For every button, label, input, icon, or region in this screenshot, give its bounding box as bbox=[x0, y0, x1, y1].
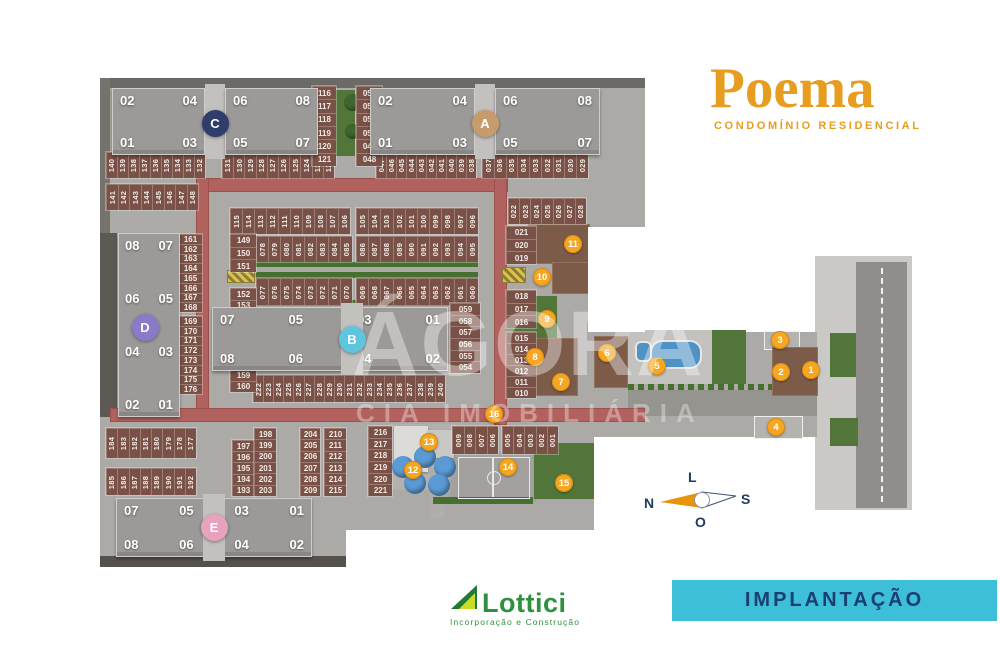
building-units-top-row: 0608 bbox=[495, 93, 600, 108]
parking-spot-030: 030 bbox=[564, 152, 576, 178]
parking-spot-078: 078 bbox=[256, 236, 268, 262]
parking-spot-215: 215 bbox=[324, 485, 346, 496]
unit-label: 08 bbox=[125, 238, 139, 253]
parking-spot-161: 161 bbox=[178, 234, 202, 244]
parking-spot-025: 025 bbox=[541, 198, 552, 224]
parking-spot-178: 178 bbox=[174, 428, 185, 458]
amenity-marker-14: 14 bbox=[499, 458, 517, 476]
parking-spot-192: 192 bbox=[185, 468, 196, 495]
parking-spot-171: 171 bbox=[178, 336, 202, 346]
parking-spot-136: 136 bbox=[150, 152, 161, 178]
parking-spot-004: 004 bbox=[513, 426, 524, 454]
unit-label: 07 bbox=[159, 238, 173, 253]
building-units-bottom-row: 0507 bbox=[495, 135, 600, 150]
unit-label: 07 bbox=[220, 312, 234, 327]
unit-label: 01 bbox=[378, 135, 392, 150]
parking-spot-163: 163 bbox=[178, 254, 202, 264]
parking-spot-185: 185 bbox=[106, 468, 117, 495]
parking-spot-114: 114 bbox=[242, 208, 254, 234]
parking-spot-041: 041 bbox=[436, 152, 446, 178]
internal-road-top bbox=[196, 178, 508, 192]
unit-label: 06 bbox=[289, 351, 303, 366]
parking-spot-099: 099 bbox=[429, 208, 441, 234]
parking-spot-224: 224 bbox=[273, 375, 283, 402]
parking-spot-042: 042 bbox=[426, 152, 436, 178]
parking-spot-145: 145 bbox=[152, 184, 164, 210]
parking-group-185-192: 185186187188189190191192 bbox=[106, 468, 196, 495]
parking-spot-033: 033 bbox=[529, 152, 541, 178]
parking-spot-079: 079 bbox=[268, 236, 280, 262]
parking-spot-191: 191 bbox=[174, 468, 185, 495]
parking-spot-103: 103 bbox=[380, 208, 392, 234]
parking-spot-197: 197 bbox=[232, 440, 254, 451]
parking-spot-175: 175 bbox=[178, 375, 202, 385]
unit-label: 06 bbox=[503, 93, 517, 108]
parking-spot-164: 164 bbox=[178, 263, 202, 273]
visitor-hatch-1 bbox=[228, 271, 254, 282]
parking-spot-090: 090 bbox=[405, 236, 417, 262]
parking-spot-100: 100 bbox=[417, 208, 429, 234]
street-green-1 bbox=[830, 333, 856, 377]
parking-group-047-038: 047046045044043042041040039038 bbox=[376, 152, 476, 178]
parking-spot-023: 023 bbox=[519, 198, 530, 224]
parking-spot-091: 091 bbox=[417, 236, 429, 262]
parking-spot-125: 125 bbox=[289, 152, 300, 178]
parking-spot-217: 217 bbox=[368, 438, 392, 450]
parking-spot-002: 002 bbox=[536, 426, 547, 454]
parking-spot-110: 110 bbox=[290, 208, 302, 234]
unit-label: 05 bbox=[159, 291, 173, 306]
parking-spot-133: 133 bbox=[183, 152, 194, 178]
parking-spot-144: 144 bbox=[141, 184, 153, 210]
plan-notch-bottom bbox=[346, 530, 645, 567]
parking-spot-188: 188 bbox=[140, 468, 151, 495]
building-D-unit-row: 0403 bbox=[118, 344, 180, 359]
hedge-1 bbox=[256, 262, 478, 267]
unit-label: 06 bbox=[179, 537, 193, 552]
parking-group-086-095: 086087088089090091092093094095 bbox=[356, 236, 478, 262]
parking-spot-039: 039 bbox=[456, 152, 466, 178]
amenity-marker-4: 4 bbox=[767, 418, 785, 436]
building-D-unit-row: 0807 bbox=[118, 238, 180, 253]
parking-spot-213: 213 bbox=[324, 462, 346, 473]
parking-spot-088: 088 bbox=[380, 236, 392, 262]
building-A-slab-1: 02040103 bbox=[370, 88, 475, 155]
compass-label-l: L bbox=[688, 469, 697, 485]
compass-rose: N L O S bbox=[638, 468, 753, 530]
parking-spot-207: 207 bbox=[300, 462, 320, 473]
parking-spot-160: 160 bbox=[230, 381, 256, 393]
parking-spot-173: 173 bbox=[178, 355, 202, 365]
unit-label: 05 bbox=[179, 503, 193, 518]
compass-label-s: S bbox=[741, 491, 750, 507]
parking-spot-028: 028 bbox=[575, 198, 586, 224]
unit-label: 08 bbox=[220, 351, 234, 366]
parking-spot-162: 162 bbox=[178, 244, 202, 254]
building-units-top-row: 0608 bbox=[225, 93, 318, 108]
parking-spot-009: 009 bbox=[452, 426, 464, 454]
parking-spot-101: 101 bbox=[405, 208, 417, 234]
parking-spot-149: 149 bbox=[230, 234, 256, 247]
building-D: 0807060504030201D bbox=[118, 233, 180, 417]
parking-spot-146: 146 bbox=[164, 184, 176, 210]
parking-spot-098: 098 bbox=[441, 208, 453, 234]
parking-spot-184: 184 bbox=[106, 428, 117, 458]
parking-spot-092: 092 bbox=[429, 236, 441, 262]
parking-spot-106: 106 bbox=[338, 208, 350, 234]
parking-spot-134: 134 bbox=[172, 152, 183, 178]
amenity-marker-13: 13 bbox=[420, 433, 438, 451]
watermark-agency-subtitle: CIA IMOBILIÁRIA bbox=[356, 398, 704, 429]
parking-spot-027: 027 bbox=[564, 198, 575, 224]
parking-spot-003: 003 bbox=[524, 426, 535, 454]
unit-label: 03 bbox=[183, 135, 197, 150]
parking-spot-071: 071 bbox=[328, 278, 340, 305]
parking-spot-032: 032 bbox=[541, 152, 553, 178]
parking-spot-094: 094 bbox=[454, 236, 466, 262]
parking-spot-229: 229 bbox=[324, 375, 334, 402]
site-edge-left-garden bbox=[100, 233, 117, 417]
building-units-top-row: 0204 bbox=[112, 93, 205, 108]
parking-spot-031: 031 bbox=[553, 152, 565, 178]
parking-spot-076: 076 bbox=[268, 278, 280, 305]
implantacao-banner-label: IMPLANTAÇÃO bbox=[745, 589, 924, 612]
parking-spot-035: 035 bbox=[506, 152, 518, 178]
parking-spot-205: 205 bbox=[300, 439, 320, 450]
parking-spot-206: 206 bbox=[300, 451, 320, 462]
parking-spot-135: 135 bbox=[161, 152, 172, 178]
parking-spot-201: 201 bbox=[254, 462, 276, 473]
parking-spot-040: 040 bbox=[446, 152, 456, 178]
parking-spot-086: 086 bbox=[356, 236, 368, 262]
parking-group-140-132: 140139138137136135134133132 bbox=[106, 152, 205, 178]
parking-group-077-070: 077076075074073072071070 bbox=[256, 278, 352, 305]
parking-spot-203: 203 bbox=[254, 485, 276, 496]
parking-group-021-019: 021020019 bbox=[506, 226, 536, 264]
parking-group-005-001: 005004003002001 bbox=[502, 426, 558, 454]
parking-spot-084: 084 bbox=[328, 236, 340, 262]
parking-spot-194: 194 bbox=[232, 474, 254, 485]
parking-spot-113: 113 bbox=[254, 208, 266, 234]
unit-label: 03 bbox=[159, 344, 173, 359]
unit-label: 02 bbox=[290, 537, 304, 552]
parking-spot-210: 210 bbox=[324, 428, 346, 439]
court-center-line bbox=[492, 457, 494, 497]
parking-spot-006: 006 bbox=[487, 426, 499, 454]
amenity-marker-3: 3 bbox=[771, 331, 789, 349]
unit-label: 01 bbox=[120, 135, 134, 150]
parking-spot-087: 087 bbox=[368, 236, 380, 262]
building-units-bottom-row: 0103 bbox=[112, 135, 205, 150]
building-units-bottom-row: 0103 bbox=[370, 135, 475, 150]
unit-label: 06 bbox=[125, 291, 139, 306]
parking-spot-089: 089 bbox=[393, 236, 405, 262]
parking-spot-172: 172 bbox=[178, 345, 202, 355]
parking-spot-140: 140 bbox=[106, 152, 117, 178]
parking-spot-225: 225 bbox=[283, 375, 293, 402]
building-A-slab-2: 06080507 bbox=[495, 88, 600, 155]
parking-spot-167: 167 bbox=[178, 293, 202, 303]
parking-spot-177: 177 bbox=[185, 428, 196, 458]
parking-spot-139: 139 bbox=[117, 152, 128, 178]
parking-group-009-006: 009008007006 bbox=[452, 426, 498, 454]
parking-group-198-203: 198199200201202203 bbox=[254, 428, 276, 496]
unit-label: 03 bbox=[234, 503, 248, 518]
parking-group-161-168: 161162163164165166167168 bbox=[178, 234, 202, 312]
parking-group-149-151: 149150151 bbox=[230, 234, 256, 272]
unit-label: 04 bbox=[234, 537, 248, 552]
parking-spot-138: 138 bbox=[128, 152, 139, 178]
unit-label: 08 bbox=[296, 93, 310, 108]
parking-spot-097: 097 bbox=[454, 208, 466, 234]
parking-spot-214: 214 bbox=[324, 473, 346, 484]
street-center-line bbox=[881, 268, 883, 502]
implantacao-banner: IMPLANTAÇÃO bbox=[672, 580, 997, 621]
parking-spot-219: 219 bbox=[368, 461, 392, 473]
parking-spot-095: 095 bbox=[466, 236, 478, 262]
parking-spot-150: 150 bbox=[230, 247, 256, 260]
parking-spot-112: 112 bbox=[266, 208, 278, 234]
parking-spot-199: 199 bbox=[254, 439, 276, 450]
parking-spot-111: 111 bbox=[278, 208, 290, 234]
amenity-marker-12: 12 bbox=[404, 461, 422, 479]
parking-spot-226: 226 bbox=[293, 375, 303, 402]
court-center-circle bbox=[487, 471, 501, 485]
parking-group-216-221: 216217218219220221 bbox=[368, 426, 392, 496]
parking-spot-109: 109 bbox=[302, 208, 314, 234]
unit-label: 07 bbox=[296, 135, 310, 150]
compass-label-o: O bbox=[695, 514, 706, 530]
parking-spot-181: 181 bbox=[140, 428, 151, 458]
parking-group-037-029: 037036035034033032031030029 bbox=[482, 152, 588, 178]
parking-spot-209: 209 bbox=[300, 485, 320, 496]
parking-spot-223: 223 bbox=[263, 375, 273, 402]
compass-hub bbox=[695, 493, 710, 508]
parking-spot-176: 176 bbox=[178, 384, 202, 394]
unit-label: 08 bbox=[578, 93, 592, 108]
unit-label: 02 bbox=[125, 397, 139, 412]
parking-spot-082: 082 bbox=[304, 236, 316, 262]
pool-lawn bbox=[712, 330, 746, 386]
parking-spot-190: 190 bbox=[162, 468, 173, 495]
building-E: 0705030108060402E bbox=[116, 498, 312, 557]
parking-spot-036: 036 bbox=[494, 152, 506, 178]
parking-spot-043: 043 bbox=[416, 152, 426, 178]
parking-spot-102: 102 bbox=[393, 208, 405, 234]
parking-spot-200: 200 bbox=[254, 451, 276, 462]
parking-spot-046: 046 bbox=[386, 152, 396, 178]
watermark-agency-name: ÁGORA bbox=[352, 292, 704, 397]
parking-spot-093: 093 bbox=[441, 236, 453, 262]
tower-label-D: D bbox=[132, 314, 159, 341]
parking-spot-170: 170 bbox=[178, 326, 202, 336]
parking-spot-107: 107 bbox=[326, 208, 338, 234]
parking-spot-221: 221 bbox=[368, 484, 392, 496]
parking-spot-073: 073 bbox=[304, 278, 316, 305]
parking-spot-132: 132 bbox=[194, 152, 205, 178]
parking-spot-204: 204 bbox=[300, 428, 320, 439]
parking-spot-168: 168 bbox=[178, 302, 202, 312]
parking-spot-212: 212 bbox=[324, 451, 346, 462]
parking-spot-189: 189 bbox=[151, 468, 162, 495]
parking-spot-024: 024 bbox=[530, 198, 541, 224]
blue-canopy-5 bbox=[428, 474, 450, 496]
parking-spot-165: 165 bbox=[178, 273, 202, 283]
parking-spot-007: 007 bbox=[475, 426, 487, 454]
unit-label: 02 bbox=[378, 93, 392, 108]
parking-spot-180: 180 bbox=[151, 428, 162, 458]
parking-spot-105: 105 bbox=[356, 208, 368, 234]
parking-spot-130: 130 bbox=[233, 152, 244, 178]
parking-spot-022: 022 bbox=[508, 198, 519, 224]
parking-spot-169: 169 bbox=[178, 316, 202, 326]
unit-label: 04 bbox=[125, 344, 139, 359]
parking-spot-108: 108 bbox=[314, 208, 326, 234]
building-D-unit-row: 0605 bbox=[118, 291, 180, 306]
unit-label: 03 bbox=[453, 135, 467, 150]
parking-spot-152: 152 bbox=[230, 288, 256, 300]
parking-spot-029: 029 bbox=[576, 152, 588, 178]
amenity-marker-11: 11 bbox=[564, 235, 582, 253]
unit-label: 05 bbox=[233, 135, 247, 150]
parking-group-210-215: 210211212213214215 bbox=[324, 428, 346, 496]
unit-label: 01 bbox=[290, 503, 304, 518]
unit-label: 02 bbox=[120, 93, 134, 108]
developer-tagline: Incorporação e Construção bbox=[450, 617, 580, 627]
parking-spot-137: 137 bbox=[139, 152, 150, 178]
parking-spot-208: 208 bbox=[300, 473, 320, 484]
unit-label: 05 bbox=[289, 312, 303, 327]
building-C-slab-2: 06080507 bbox=[225, 88, 318, 155]
parking-spot-077: 077 bbox=[256, 278, 268, 305]
parking-spot-020: 020 bbox=[506, 239, 536, 252]
parking-spot-227: 227 bbox=[304, 375, 314, 402]
parking-spot-083: 083 bbox=[316, 236, 328, 262]
parking-spot-072: 072 bbox=[316, 278, 328, 305]
amenity-marker-10: 10 bbox=[533, 268, 551, 286]
building-C-slab-1: 02040103 bbox=[112, 88, 205, 155]
parking-group-105-096: 105104103102101100099098097096 bbox=[356, 208, 478, 234]
parking-group-184-177: 184183182181180179178177 bbox=[106, 428, 196, 458]
building-units-bottom-row: 0507 bbox=[225, 135, 318, 150]
parking-spot-147: 147 bbox=[175, 184, 187, 210]
tower-label-E: E bbox=[201, 514, 228, 541]
compass-label-n: N bbox=[644, 495, 654, 511]
parking-spot-124: 124 bbox=[300, 152, 311, 178]
parking-spot-142: 142 bbox=[118, 184, 130, 210]
parking-spot-220: 220 bbox=[368, 473, 392, 485]
unit-label: 07 bbox=[578, 135, 592, 150]
parking-spot-045: 045 bbox=[396, 152, 406, 178]
parking-spot-129: 129 bbox=[244, 152, 255, 178]
parking-spot-211: 211 bbox=[324, 439, 346, 450]
parking-spot-034: 034 bbox=[517, 152, 529, 178]
parking-spot-141: 141 bbox=[106, 184, 118, 210]
parking-spot-196: 196 bbox=[232, 451, 254, 462]
parking-spot-044: 044 bbox=[406, 152, 416, 178]
parking-spot-179: 179 bbox=[162, 428, 173, 458]
parking-spot-005: 005 bbox=[502, 426, 513, 454]
parking-group-197-193: 197196195194193 bbox=[232, 440, 254, 496]
street-green-2 bbox=[830, 418, 858, 446]
unit-label: 04 bbox=[183, 93, 197, 108]
parking-spot-202: 202 bbox=[254, 473, 276, 484]
parking-group-204-209: 204205206207208209 bbox=[300, 428, 320, 496]
tower-label-A: A bbox=[472, 110, 499, 137]
parking-spot-070: 070 bbox=[340, 278, 352, 305]
parking-spot-182: 182 bbox=[129, 428, 140, 458]
parking-spot-008: 008 bbox=[464, 426, 476, 454]
parking-spot-080: 080 bbox=[280, 236, 292, 262]
parking-group-115-106: 115114113112111110109108107106 bbox=[230, 208, 350, 234]
parking-spot-187: 187 bbox=[129, 468, 140, 495]
parking-spot-019: 019 bbox=[506, 251, 536, 264]
parking-spot-081: 081 bbox=[292, 236, 304, 262]
parking-spot-001: 001 bbox=[547, 426, 558, 454]
tower-label-C: C bbox=[202, 110, 229, 137]
project-logo-title: Poema bbox=[710, 56, 875, 121]
parking-spot-193: 193 bbox=[232, 485, 254, 496]
parking-spot-126: 126 bbox=[278, 152, 289, 178]
parking-spot-143: 143 bbox=[129, 184, 141, 210]
parking-group-141-148: 141142143144145146147148 bbox=[106, 184, 198, 210]
amenity-marker-2: 2 bbox=[772, 363, 790, 381]
parking-spot-096: 096 bbox=[466, 208, 478, 234]
parking-spot-195: 195 bbox=[232, 462, 254, 473]
visitor-hatch-2 bbox=[503, 268, 525, 282]
parking-spot-151: 151 bbox=[230, 259, 256, 272]
parking-group-022-028: 022023024025026027028 bbox=[508, 198, 586, 224]
unit-label: 06 bbox=[233, 93, 247, 108]
unit-label: 01 bbox=[159, 397, 173, 412]
developer-name: Lottici bbox=[482, 591, 567, 615]
parking-spot-230: 230 bbox=[334, 375, 344, 402]
parking-spot-127: 127 bbox=[267, 152, 278, 178]
amenity-marker-1: 1 bbox=[802, 361, 820, 379]
building-D-unit-row: 0201 bbox=[118, 397, 180, 412]
building-units-top-row: 0204 bbox=[370, 93, 475, 108]
developer-triangle-icon bbox=[450, 584, 478, 615]
site-plan-canvas: 1401391381371361351341331321311301291281… bbox=[0, 0, 1000, 667]
parking-spot-166: 166 bbox=[178, 283, 202, 293]
parking-group-078-085: 078079080081082083084085 bbox=[256, 236, 352, 262]
parking-spot-074: 074 bbox=[292, 278, 304, 305]
parking-group-169-176: 169170171172173174175176 bbox=[178, 316, 202, 394]
parking-spot-128: 128 bbox=[256, 152, 267, 178]
amenity-marker-15: 15 bbox=[555, 474, 573, 492]
parking-spot-183: 183 bbox=[117, 428, 128, 458]
unit-label: 04 bbox=[453, 93, 467, 108]
parking-spot-026: 026 bbox=[553, 198, 564, 224]
unit-label: 07 bbox=[124, 503, 138, 518]
parking-spot-174: 174 bbox=[178, 365, 202, 375]
building-C: 0204010306080507C bbox=[112, 88, 318, 155]
amenity-building-11b bbox=[552, 262, 590, 294]
developer-logo: Lottici Incorporação e Construção bbox=[450, 584, 580, 627]
building-A: 0204010306080507A bbox=[370, 88, 600, 155]
unit-label: 08 bbox=[124, 537, 138, 552]
parking-spot-148: 148 bbox=[187, 184, 199, 210]
parking-spot-075: 075 bbox=[280, 278, 292, 305]
project-logo-subtitle: CONDOMÍNIO RESIDENCIAL bbox=[714, 120, 922, 132]
parking-spot-104: 104 bbox=[368, 208, 380, 234]
parking-spot-021: 021 bbox=[506, 226, 536, 239]
parking-spot-186: 186 bbox=[117, 468, 128, 495]
parking-spot-198: 198 bbox=[254, 428, 276, 439]
parking-spot-115: 115 bbox=[230, 208, 242, 234]
parking-spot-228: 228 bbox=[314, 375, 324, 402]
unit-label: 05 bbox=[503, 135, 517, 150]
